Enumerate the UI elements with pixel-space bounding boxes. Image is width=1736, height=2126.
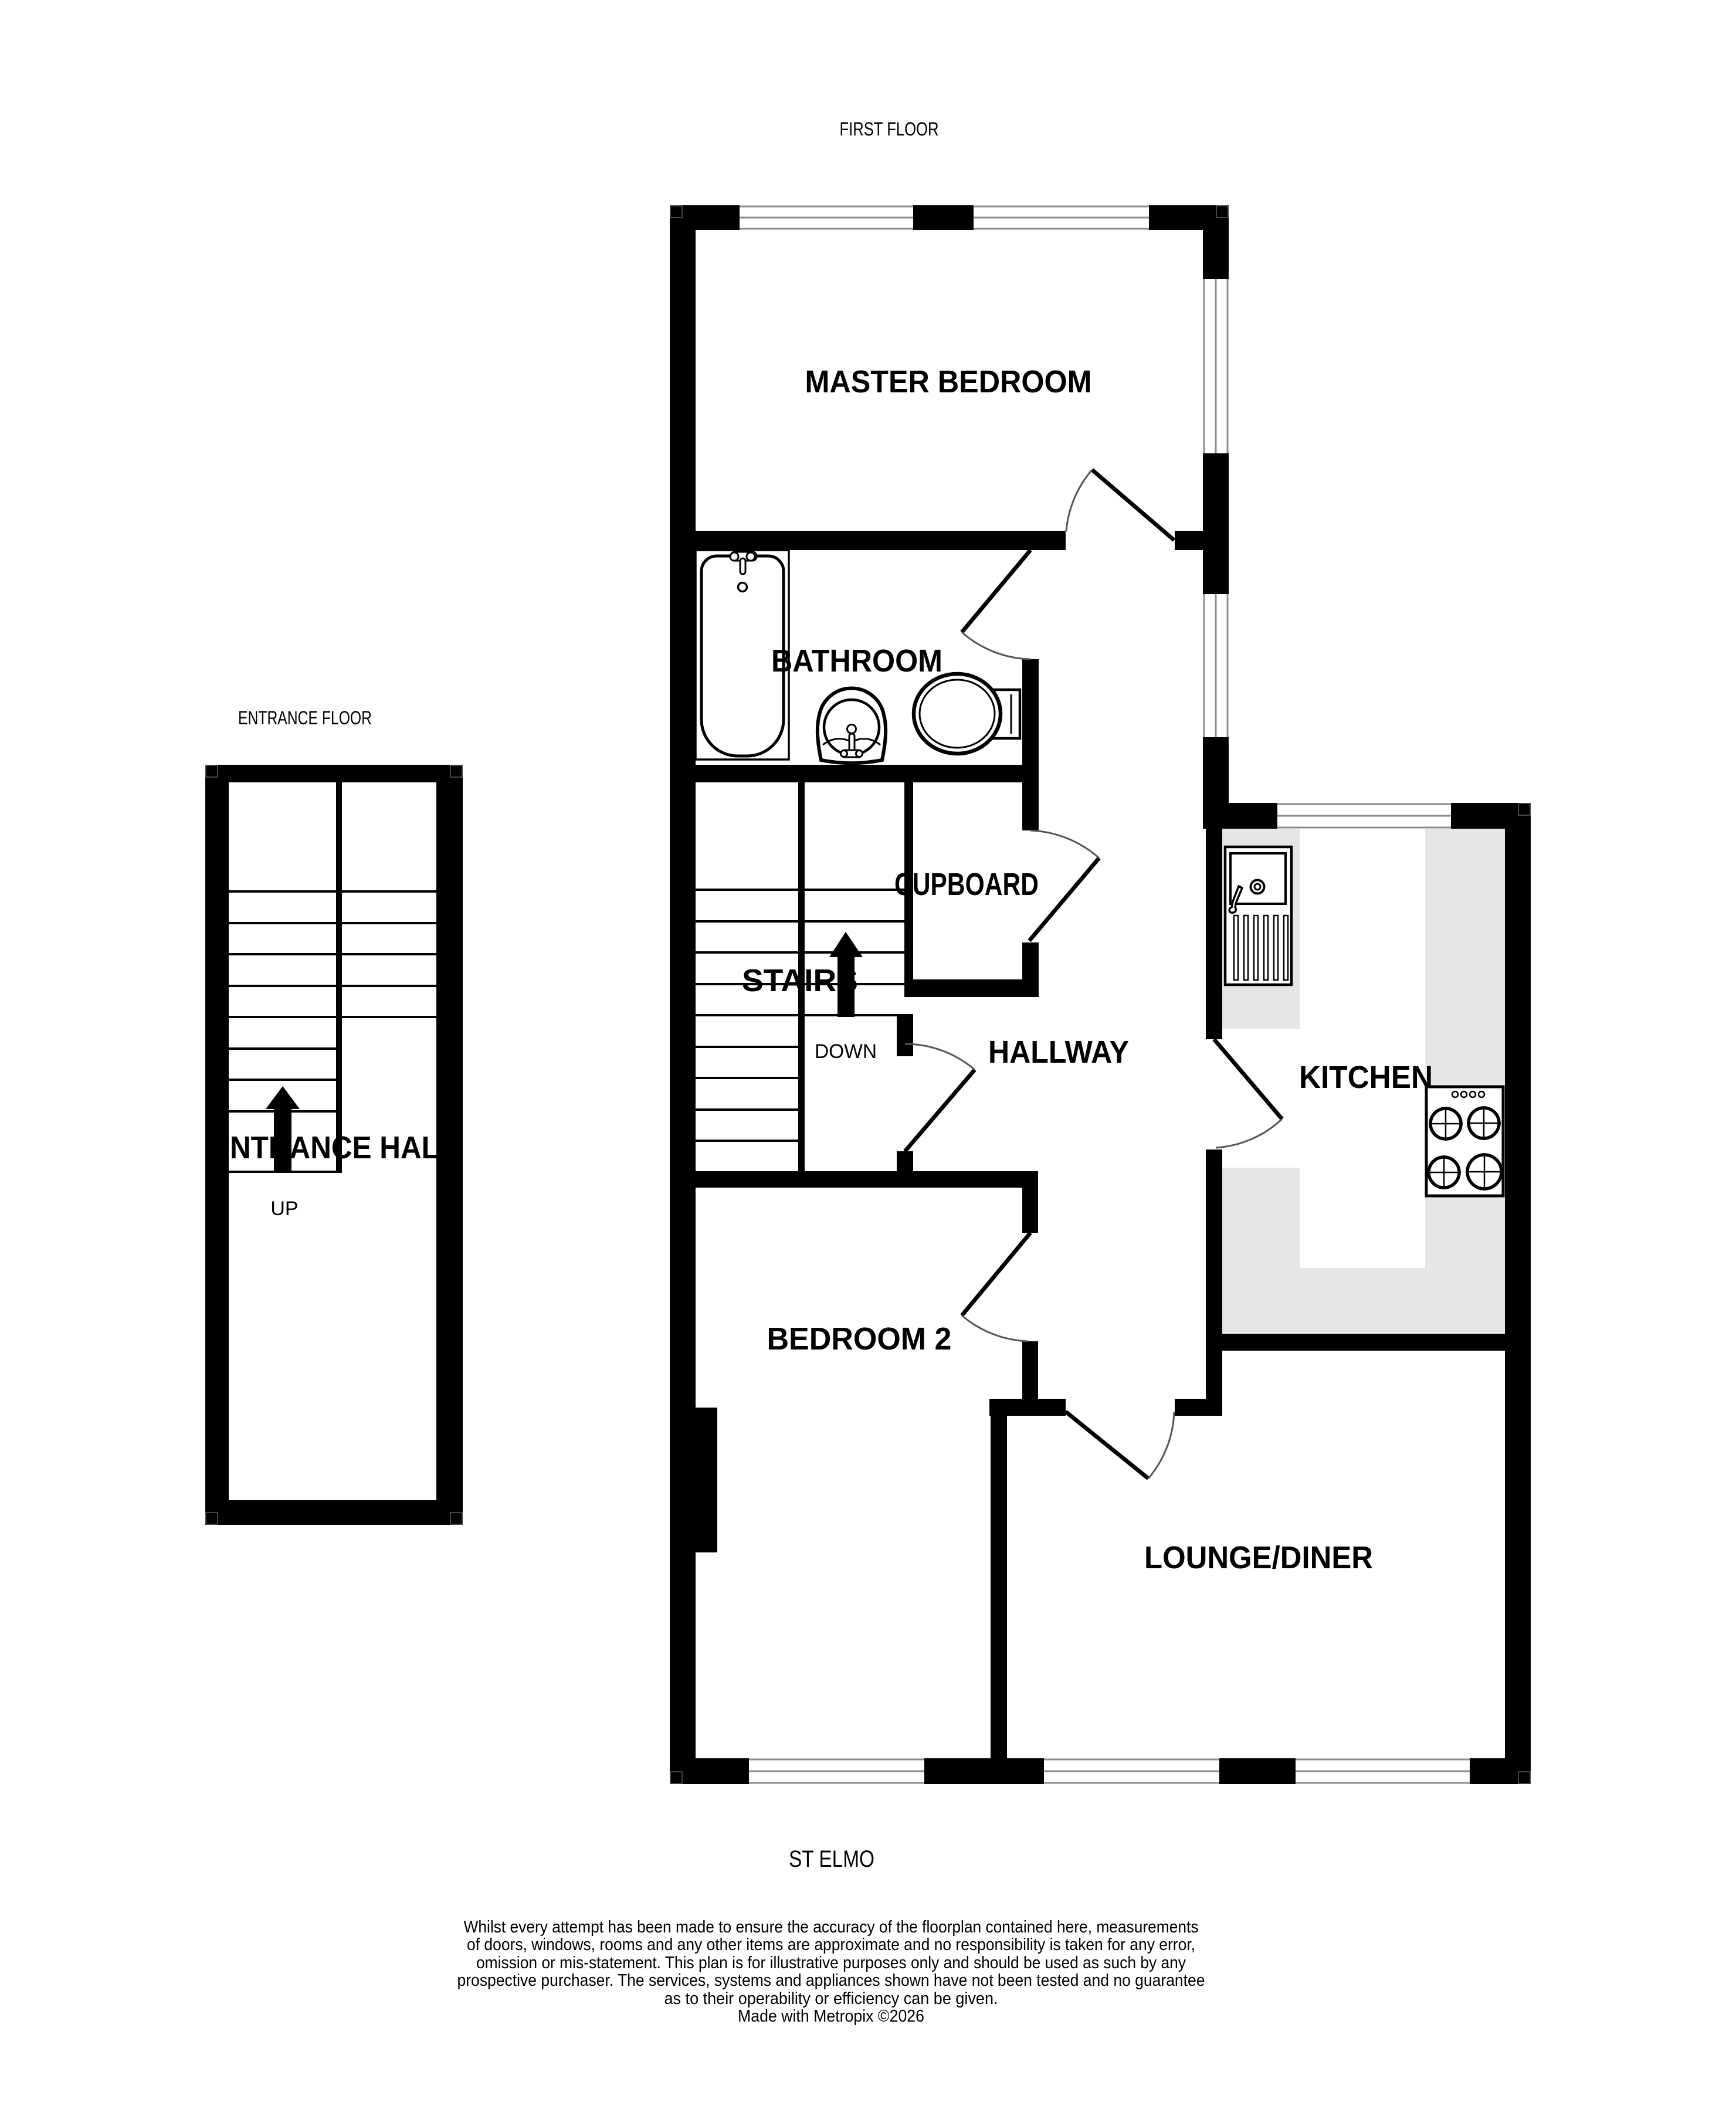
svg-text:FIRST FLOOR: FIRST FLOOR [840,118,939,140]
svg-text:ENTRANCE HALL: ENTRANCE HALL [211,1130,457,1165]
svg-text:prospective purchaser. The ser: prospective purchaser. The services, sys… [457,1971,1205,1990]
svg-text:Made with Metropix ©2026: Made with Metropix ©2026 [738,2007,924,2026]
svg-text:BATHROOM: BATHROOM [771,643,942,679]
svg-text:as to their operability or eff: as to their operability or efficiency ca… [664,1989,998,2008]
svg-text:BEDROOM 2: BEDROOM 2 [767,1321,952,1357]
svg-text:HALLWAY: HALLWAY [988,1035,1129,1070]
svg-text:CUPBOARD: CUPBOARD [894,867,1039,902]
svg-text:DOWN: DOWN [815,1040,877,1063]
svg-text:LOUNGE/DINER: LOUNGE/DINER [1144,1540,1373,1575]
svg-text:Whilst every attempt has been: Whilst every attempt has been made to en… [464,1918,1199,1937]
svg-text:omission or mis-statement. Thi: omission or mis-statement. This plan is … [476,1954,1186,1972]
svg-text:MASTER BEDROOM: MASTER BEDROOM [805,364,1092,399]
svg-text:of doors, windows, rooms and a: of doors, windows, rooms and any other i… [467,1935,1195,1954]
svg-text:ENTRANCE FLOOR: ENTRANCE FLOOR [238,707,372,728]
svg-text:ST ELMO: ST ELMO [789,1846,874,1872]
svg-text:UP: UP [270,1198,298,1220]
svg-text:KITCHEN: KITCHEN [1299,1060,1433,1095]
